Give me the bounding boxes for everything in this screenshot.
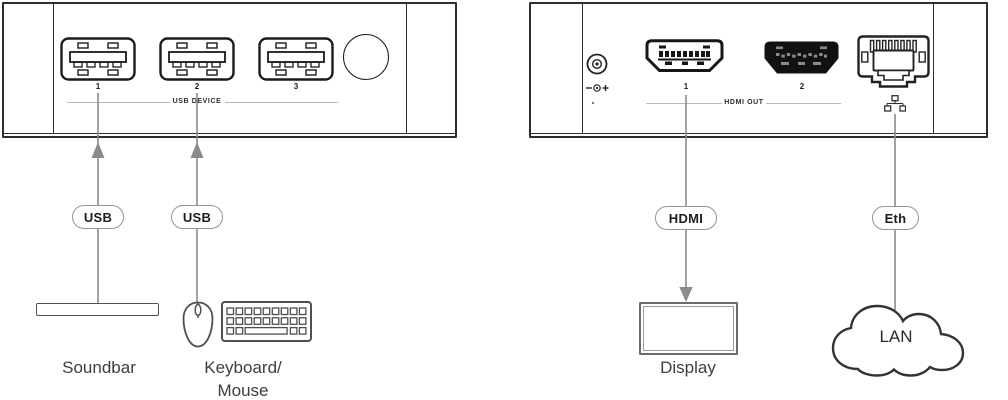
- front-panel-left-divider: [53, 3, 54, 134]
- mouse-icon: [179, 301, 217, 348]
- usb-port-1-icon: [60, 37, 136, 81]
- hdmi-port-1-number: 1: [676, 82, 696, 91]
- connection-diagram: 1 2 3 USB DEVICE: [0, 0, 1008, 400]
- hdmi-group-line-right: [766, 103, 841, 104]
- keyboard-mouse-label: Keyboard/ Mouse: [183, 356, 303, 400]
- hdmi-group-line-left: [646, 103, 722, 104]
- rear-panel-right-divider: [933, 3, 934, 134]
- eth-tag: Eth: [872, 206, 919, 230]
- panel-button: [343, 34, 389, 80]
- hdmi-tag: HDMI: [655, 206, 717, 230]
- usb-port-3-icon: [258, 37, 334, 81]
- hdmi-port-2-icon: [764, 41, 839, 74]
- soundbar-icon: [36, 303, 159, 316]
- display-icon: [639, 302, 738, 355]
- usb-port-2-number: 2: [187, 82, 207, 91]
- hdmi-group-label: HDMI OUT: [722, 99, 766, 107]
- usb-group-line-left: [67, 102, 170, 103]
- display-label: Display: [628, 356, 748, 379]
- usb-port-1-number: 1: [88, 82, 108, 91]
- soundbar-label: Soundbar: [38, 356, 160, 379]
- lan-label: LAN: [866, 325, 926, 348]
- usb-group-line-right: [225, 102, 338, 103]
- rear-panel-left-divider: [582, 3, 583, 134]
- usb1-up-arrow: [92, 142, 105, 158]
- hdmi-down-arrow: [679, 287, 692, 302]
- rear-panel-baseline: [530, 133, 987, 134]
- usb-group-label: USB DEVICE: [170, 98, 224, 106]
- panel-dot: [592, 102, 594, 104]
- usb-port-3-number: 3: [286, 82, 306, 91]
- keyboard-icon: [221, 301, 312, 342]
- ethernet-port-icon: [857, 35, 930, 89]
- usb2-up-arrow: [191, 142, 204, 158]
- usb2-tag: USB: [171, 205, 223, 229]
- dc-power-connector-icon: [584, 51, 610, 77]
- hdmi-port-2-number: 2: [792, 82, 812, 91]
- lan-network-icon: [884, 95, 906, 112]
- usb1-tag: USB: [72, 205, 124, 229]
- hdmi-port-1-icon: [645, 39, 724, 76]
- display-screen: [643, 306, 734, 351]
- front-panel-right-divider: [406, 3, 407, 134]
- polarity-icon: [586, 83, 609, 93]
- usb-port-2-icon: [159, 37, 235, 81]
- front-panel-baseline: [3, 133, 456, 134]
